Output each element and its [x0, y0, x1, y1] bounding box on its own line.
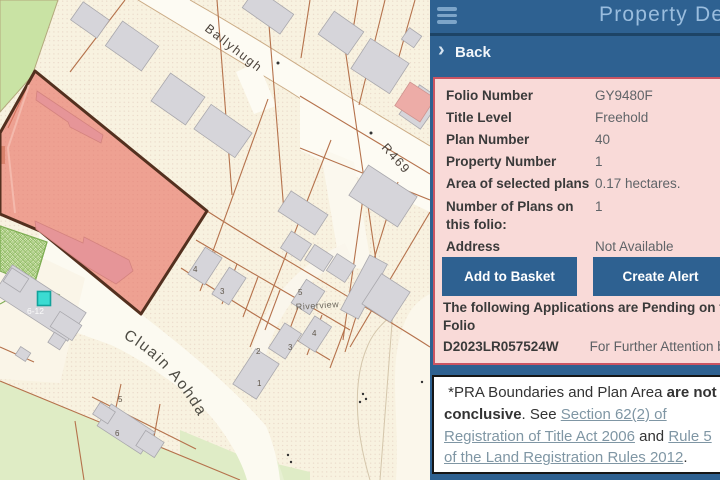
svg-text:3: 3 [220, 287, 225, 296]
svg-text:5: 5 [118, 395, 123, 404]
svg-text:4: 4 [193, 265, 198, 274]
svg-text:1: 1 [257, 379, 262, 388]
svg-text:3: 3 [288, 343, 293, 352]
svg-text:6-12: 6-12 [27, 306, 44, 316]
svg-text:4: 4 [312, 329, 317, 338]
svg-text:6: 6 [115, 429, 120, 438]
svg-text:5: 5 [298, 288, 303, 297]
svg-text:2: 2 [256, 347, 261, 356]
